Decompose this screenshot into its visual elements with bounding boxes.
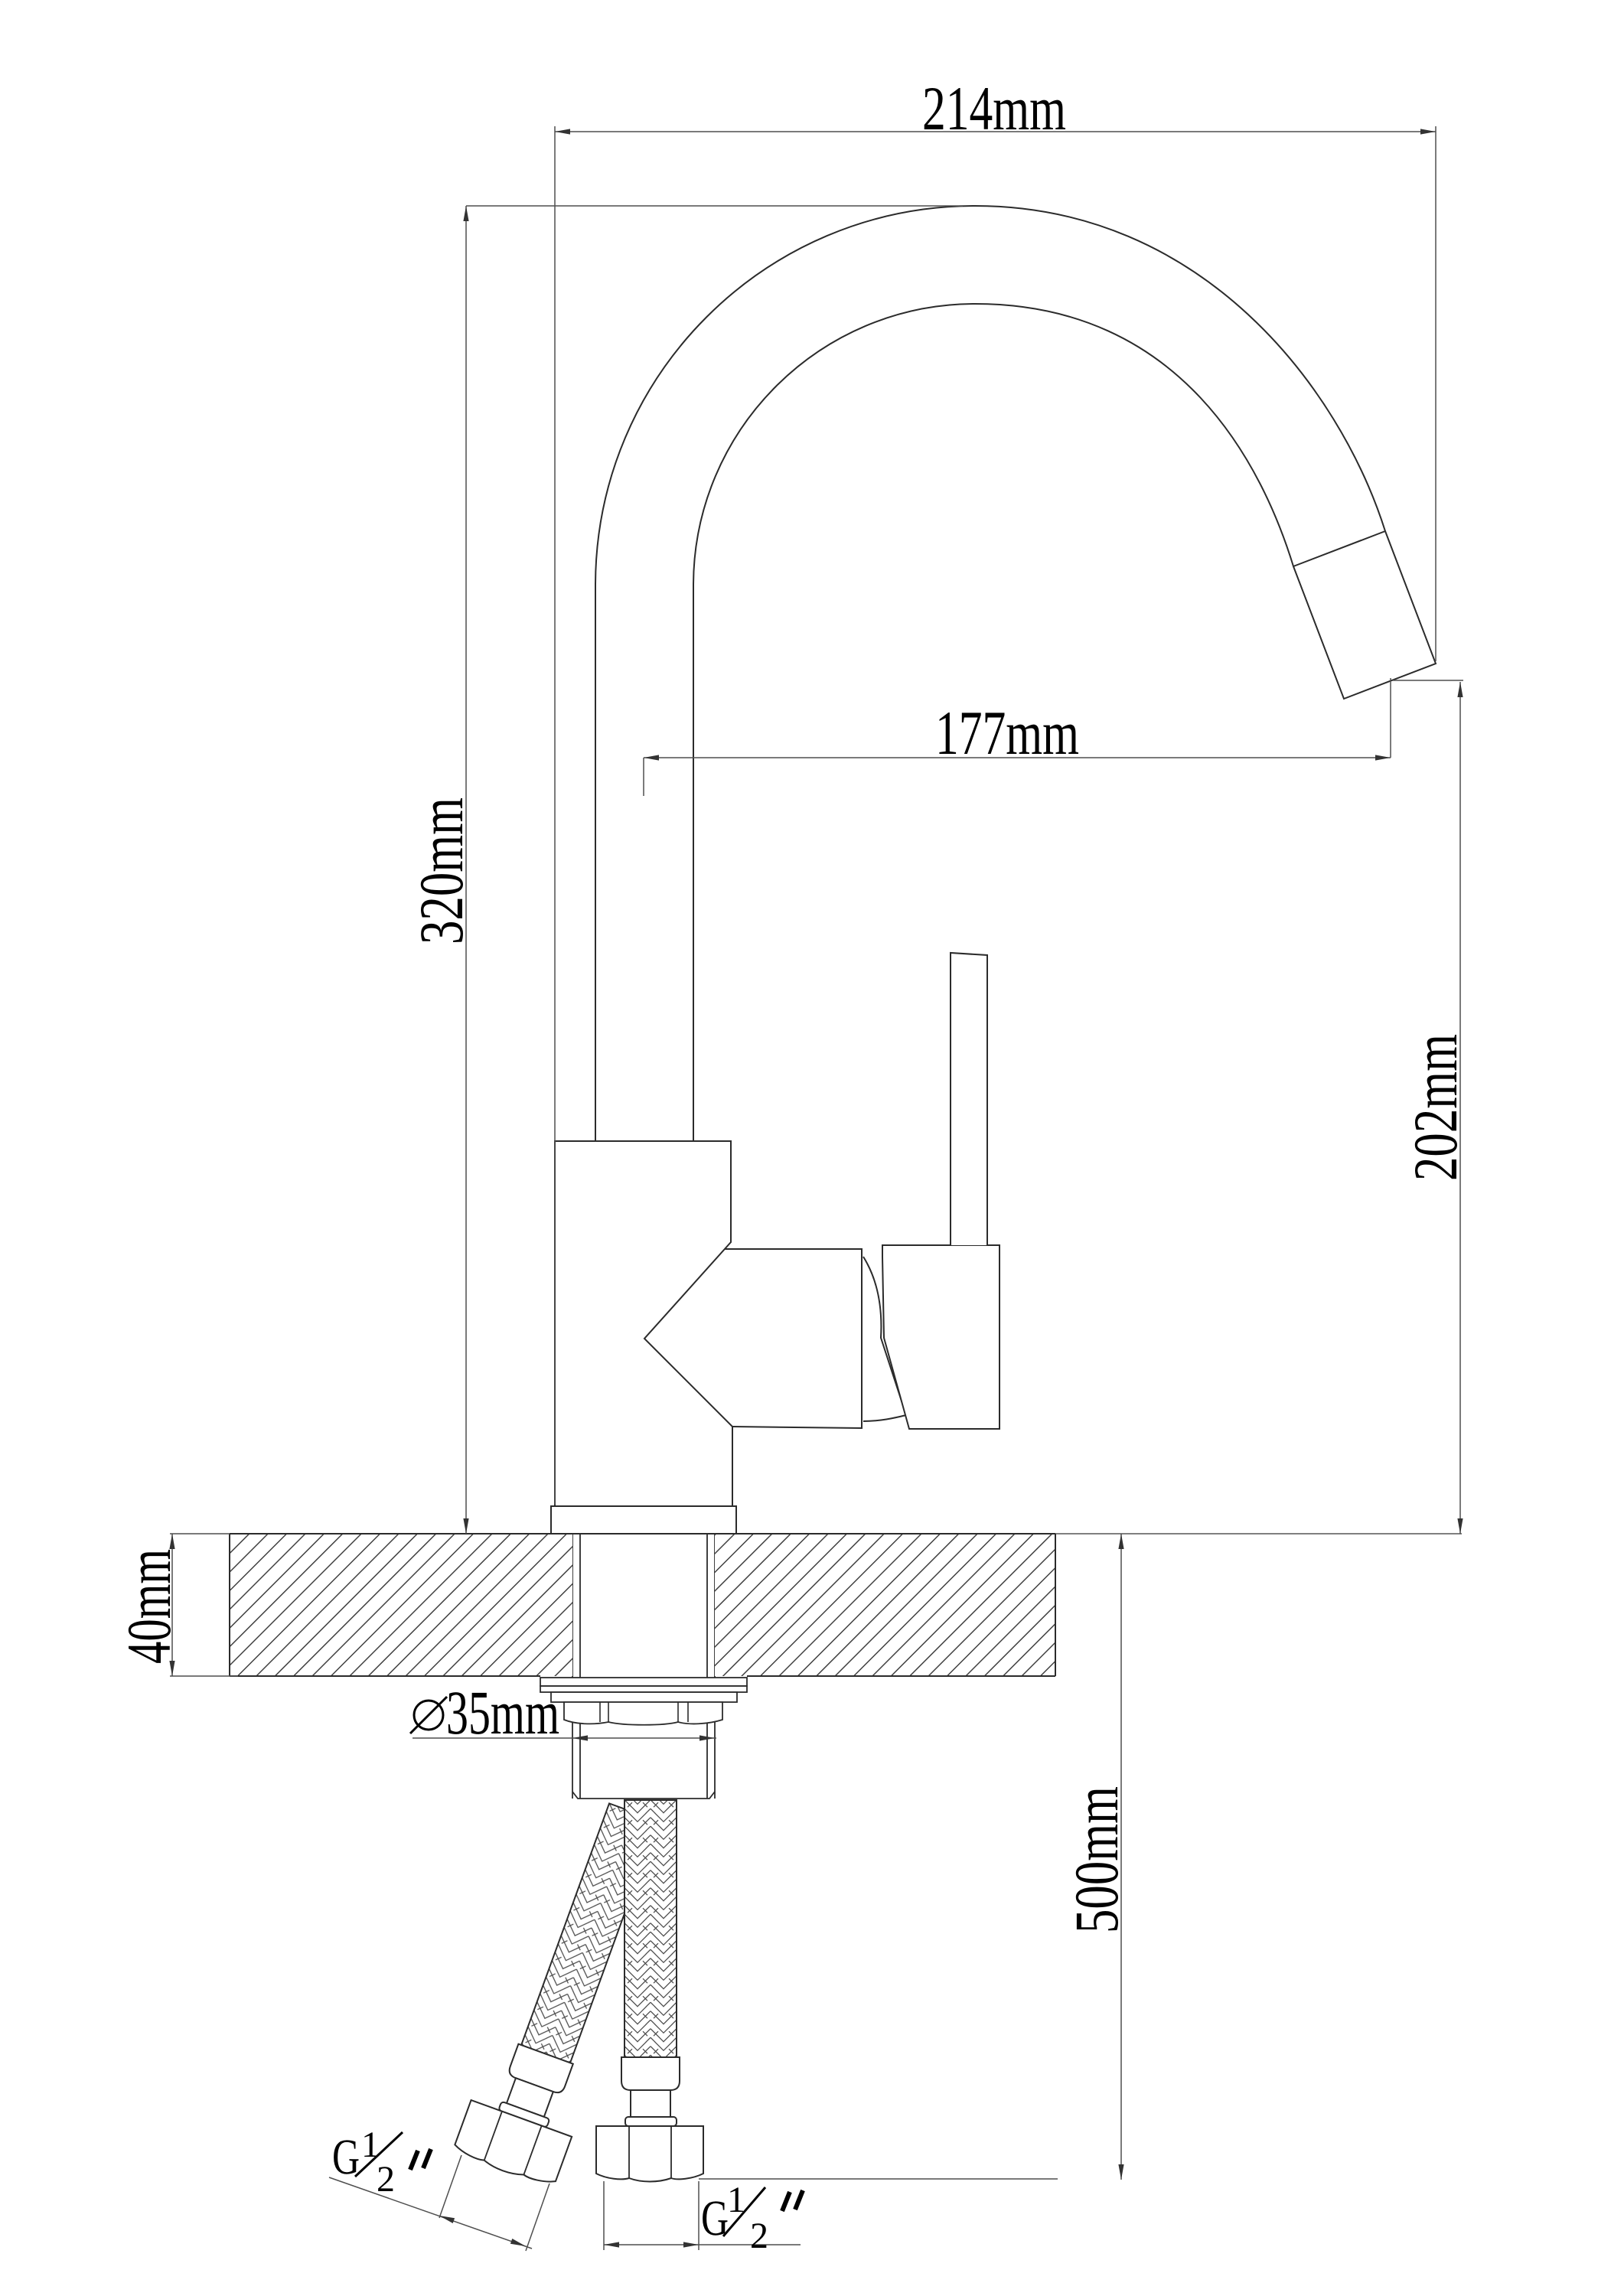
svg-text:202mm: 202mm xyxy=(1401,1034,1470,1181)
svg-text:40mm: 40mm xyxy=(114,1549,184,1664)
svg-text:320mm: 320mm xyxy=(406,797,476,944)
svg-text:2: 2 xyxy=(750,2216,768,2256)
svg-text:177mm: 177mm xyxy=(935,698,1079,768)
svg-text:G: G xyxy=(701,2190,729,2246)
svg-text:500mm: 500mm xyxy=(1061,1786,1131,1933)
svg-text:214mm: 214mm xyxy=(922,73,1066,143)
svg-text:35mm: 35mm xyxy=(446,1678,559,1747)
svg-text:2: 2 xyxy=(377,2159,395,2200)
